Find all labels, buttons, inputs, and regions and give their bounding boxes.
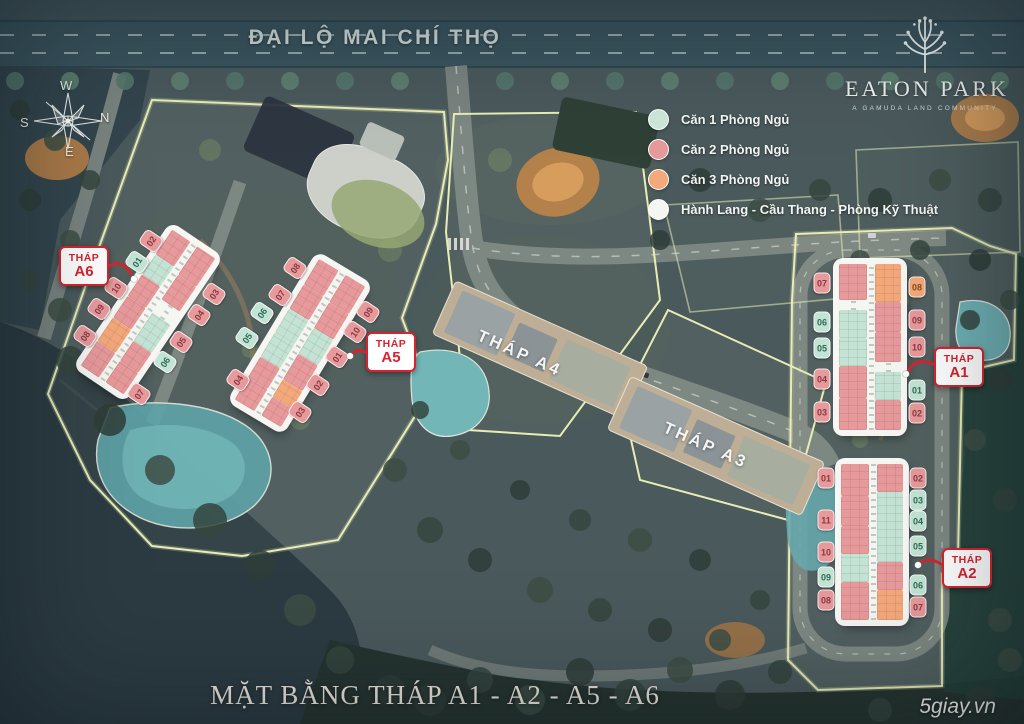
legend-label: Căn 2 Phòng Ngủ: [681, 142, 789, 157]
site-plan-map: THÁP A4 THÁP A3 02011009080304050607THÁP…: [0, 0, 1024, 724]
unit-block: [839, 310, 867, 338]
unit-badge-a2-04: 04: [910, 511, 927, 532]
unit-badge-a1-06: 06: [814, 312, 831, 333]
unit-block: [875, 264, 901, 302]
unit-badge-a2-06: 06: [910, 575, 927, 596]
unit-badge-a2-08: 08: [818, 590, 835, 611]
unit-block: [841, 526, 869, 554]
unit-badge-a1-10: 10: [909, 337, 926, 358]
unit-block: [875, 372, 901, 400]
legend-label: Hành Lang - Cầu Thang - Phòng Kỹ Thuật: [681, 202, 938, 217]
unit-badge-a1-04: 04: [814, 369, 831, 390]
tower-label-a6: THÁPA6: [59, 246, 109, 286]
unit-badge-a1-02: 02: [909, 403, 926, 424]
unit-badge-a1-09: 09: [909, 310, 926, 331]
unit-badge-a2-03: 03: [910, 490, 927, 511]
unit-block: [839, 398, 867, 430]
tower-label-a1: THÁPA1: [934, 347, 984, 387]
watermark: 5giay.vn: [919, 695, 996, 719]
legend-item-corridor: Hành Lang - Cầu Thang - Phòng Kỹ Thuật: [648, 194, 938, 224]
tower-label-prefix: THÁP: [952, 555, 983, 566]
tower-label-a5: THÁPA5: [366, 332, 416, 372]
unit-badge-a1-07: 07: [814, 273, 831, 294]
tower-label-name: A2: [957, 566, 976, 582]
unit-block: [839, 264, 867, 300]
legend: Căn 1 Phòng NgủCăn 2 Phòng NgủCăn 3 Phòn…: [648, 104, 938, 224]
unit-block: [841, 554, 869, 582]
tower-label-name: A5: [381, 350, 400, 366]
tower-label-name: A6: [74, 264, 93, 280]
legend-item-3br: Căn 3 Phòng Ngủ: [648, 164, 938, 194]
unit-badge-a2-05: 05: [910, 536, 927, 557]
legend-color-dot: [648, 109, 669, 130]
tower-a2-floorplan: [838, 461, 906, 623]
tower-label-prefix: THÁP: [376, 339, 407, 350]
legend-item-2br: Căn 2 Phòng Ngủ: [648, 134, 938, 164]
unit-block: [839, 300, 867, 310]
unit-block: [877, 590, 903, 620]
tower-label-prefix: THÁP: [944, 354, 975, 365]
unit-block: [839, 338, 867, 366]
compass-bottom: E: [65, 144, 74, 159]
unit-badge-a1-05: 05: [814, 338, 831, 359]
tower-label-name: A1: [949, 365, 968, 381]
unit-block: [877, 492, 903, 562]
legend-label: Căn 3 Phòng Ngủ: [681, 172, 789, 187]
unit-badge-a2-11: 11: [818, 510, 835, 531]
road-name: ĐẠI LỘ MAI CHÍ THỌ: [215, 26, 535, 50]
unit-block: [839, 366, 867, 398]
logo-tagline: A GAMUDA LAND COMMUNITY: [845, 105, 1005, 112]
unit-block: [841, 496, 869, 526]
tower-a1-floorplan: [836, 261, 904, 433]
unit-block: [841, 464, 869, 496]
logo-title: EATON PARK: [845, 76, 1005, 102]
compass-left: S: [20, 115, 29, 130]
compass-top: W: [60, 78, 72, 93]
legend-label: Căn 1 Phòng Ngủ: [681, 112, 789, 127]
legend-color-dot: [648, 169, 669, 190]
unit-badge-a2-01: 01: [818, 468, 835, 489]
project-logo: EATON PARK A GAMUDA LAND COMMUNITY: [845, 12, 1005, 112]
unit-block: [875, 332, 901, 362]
compass-right: N: [100, 110, 109, 125]
legend-color-dot: [648, 139, 669, 160]
tree-icon: [898, 12, 952, 74]
unit-badge-a1-01: 01: [909, 380, 926, 401]
tower-label-prefix: THÁP: [69, 253, 100, 264]
unit-block: [875, 400, 901, 430]
legend-color-dot: [648, 199, 669, 220]
unit-block: [877, 464, 903, 492]
unit-badge-a1-03: 03: [814, 402, 831, 423]
unit-badge-a1-08: 08: [909, 277, 926, 298]
unit-block: [875, 362, 901, 372]
compass-rose: W N E S: [18, 60, 126, 168]
unit-badge-a2-07: 07: [910, 597, 927, 618]
unit-block: [877, 562, 903, 590]
unit-badge-a2-10: 10: [818, 542, 835, 563]
unit-badge-a2-09: 09: [818, 567, 835, 588]
unit-block: [867, 264, 875, 430]
unit-block: [875, 302, 901, 332]
page-title: MẶT BẰNG THÁP A1 - A2 - A5 - A6: [115, 680, 755, 711]
unit-badge-a2-02: 02: [910, 468, 927, 489]
tower-label-a2: THÁPA2: [942, 548, 992, 588]
unit-block: [841, 582, 869, 620]
unit-block: [869, 464, 877, 620]
